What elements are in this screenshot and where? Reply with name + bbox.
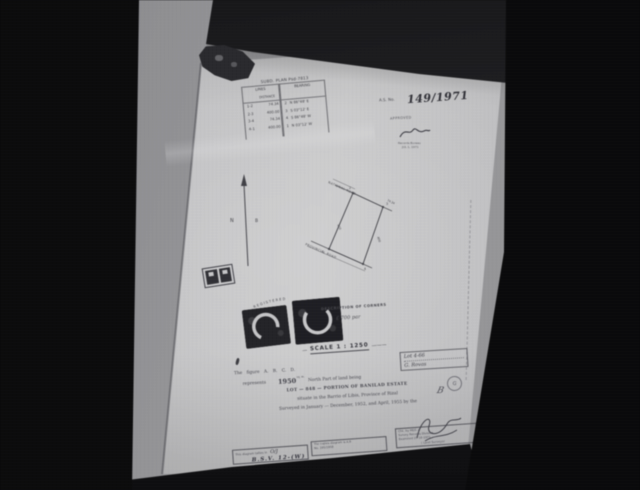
north-mark-left: N	[230, 218, 234, 224]
binder-clip-highlight	[215, 55, 223, 61]
as-number-label: A.S. No.	[379, 97, 395, 103]
scale-dash-right: ———	[371, 342, 386, 349]
area-number: 1950	[278, 376, 297, 385]
road-label-top: NATIONAL ROAD	[328, 180, 357, 196]
side-length-right: 400	[376, 236, 382, 243]
body-line-2-post: North Part of land being	[308, 375, 361, 383]
footer-box1-mark: O/J	[270, 449, 278, 456]
corner-label-br: 4	[364, 267, 366, 271]
area-unit: sq. m.	[296, 374, 304, 380]
binder-clip-highlight	[231, 62, 237, 67]
stamp-glyph	[205, 269, 219, 285]
north-arrow-icon: N B	[226, 170, 266, 274]
seal-stamp-left	[242, 305, 291, 349]
body-line-2-pre: represents	[243, 380, 267, 386]
parcel-diagram: 2 3 1 4 NATIONAL ROAD PROVINCIAL ROAD 40…	[295, 163, 430, 298]
corner-label-tr: 3	[386, 202, 388, 206]
photo-frame: SUBD. PLAN Psd-7813 LINES BEARING DISTAN…	[0, 0, 640, 490]
area-value: 1950 sq. m.	[278, 377, 296, 384]
photo-of-survey-plan: SUBD. PLAN Psd-7813 LINES BEARING DISTAN…	[0, 0, 640, 490]
seal-stamps: REGISTERED	[236, 283, 352, 375]
table-rule-extension	[245, 133, 258, 140]
scale-dash-left: —	[302, 347, 307, 353]
table-grid: LINES BEARING DISTANCE 1-2 74.34 2 N 86°…	[241, 79, 333, 139]
traverse-table: SUBD. PLAN Psd-7813 LINES BEARING DISTAN…	[241, 73, 334, 139]
north-mark-right: B	[255, 218, 258, 224]
footer-box-2: The copies diagram is A.B No. 195/1958	[311, 436, 388, 456]
approval-signature	[398, 124, 432, 140]
approval-date: JUL 1, 1971	[402, 145, 419, 149]
road-label-bottom: PROVINCIAL ROAD	[305, 242, 338, 260]
stamp-glyph	[218, 267, 232, 283]
